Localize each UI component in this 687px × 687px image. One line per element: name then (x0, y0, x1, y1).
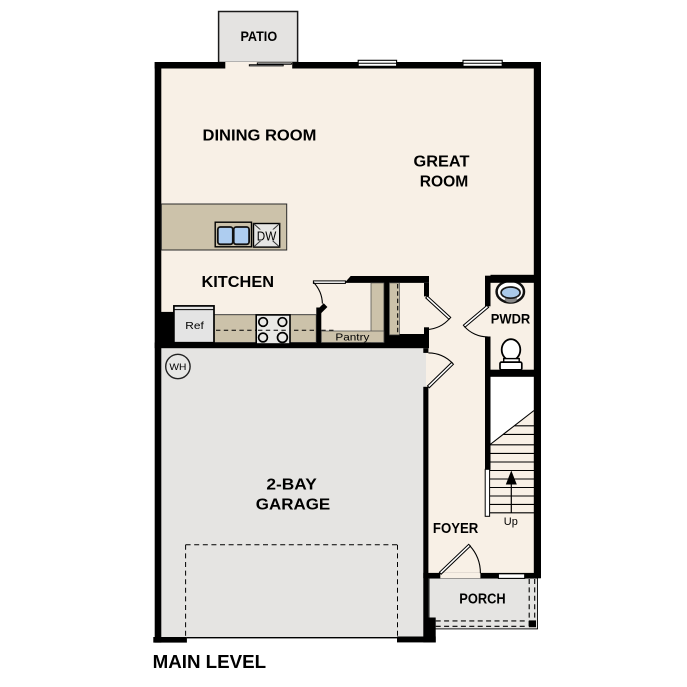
svg-text:GARAGE: GARAGE (256, 497, 330, 514)
svg-text:Ref: Ref (185, 320, 204, 332)
svg-text:KITCHEN: KITCHEN (202, 274, 275, 291)
svg-text:2-BAY: 2-BAY (266, 477, 317, 494)
svg-text:Up: Up (504, 516, 518, 528)
svg-text:ROOM: ROOM (420, 173, 469, 190)
svg-text:DW: DW (257, 229, 277, 243)
svg-text:WH: WH (169, 361, 186, 372)
svg-text:GREAT: GREAT (414, 153, 470, 170)
svg-text:PORCH: PORCH (459, 592, 505, 608)
svg-text:MAIN LEVEL: MAIN LEVEL (153, 652, 267, 672)
svg-text:Pantry: Pantry (335, 331, 370, 343)
svg-text:PATIO: PATIO (240, 28, 277, 44)
svg-text:DINING ROOM: DINING ROOM (203, 127, 317, 144)
svg-text:PWDR: PWDR (491, 310, 531, 326)
svg-text:FOYER: FOYER (433, 521, 479, 537)
